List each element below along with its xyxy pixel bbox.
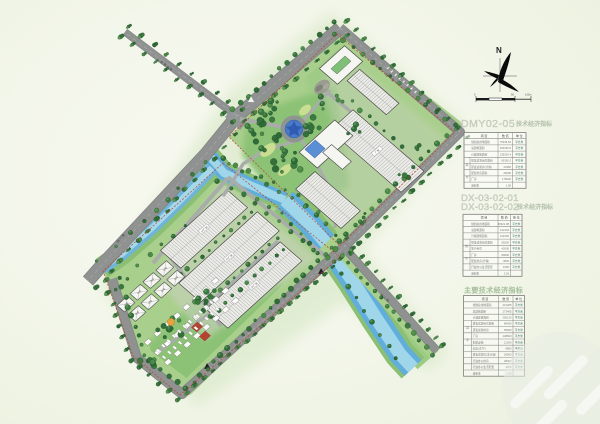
svg-text:平方米: 平方米 — [515, 165, 523, 169]
svg-text:平方米: 平方米 — [515, 309, 523, 313]
svg-text:配套设施: 配套设施 — [473, 340, 484, 344]
svg-text:容积率: 容积率 — [473, 371, 481, 375]
svg-text:平方米: 平方米 — [515, 140, 523, 144]
svg-text:平方米: 平方米 — [515, 322, 523, 326]
svg-text:规划总用地面积: 规划总用地面积 — [473, 303, 492, 307]
svg-text:项 目: 项 目 — [482, 297, 489, 301]
svg-text:研发试验用房: 研发试验用房 — [473, 328, 489, 332]
svg-text:主要技术经济指标: 主要技术经济指标 — [464, 285, 523, 294]
svg-text:平方米: 平方米 — [512, 222, 520, 226]
svg-text:平方米: 平方米 — [512, 247, 520, 251]
svg-text:平方米: 平方米 — [515, 340, 523, 344]
svg-text:75345.62: 75345.62 — [500, 140, 512, 144]
svg-text:平方米: 平方米 — [512, 234, 520, 238]
svg-text:其: 其 — [466, 326, 469, 330]
svg-text:N: N — [496, 46, 502, 55]
svg-text:研发试验用房面积: 研发试验用房面积 — [473, 322, 495, 326]
svg-text:89600: 89600 — [502, 253, 510, 257]
svg-text:总建筑面积: 总建筑面积 — [473, 309, 487, 313]
svg-text:行政办公用房: 行政办公用房 — [473, 359, 489, 363]
svg-text:配套用房(计容): 配套用房(计容) — [471, 259, 489, 263]
svg-text:86450: 86450 — [504, 322, 512, 326]
svg-text:生产用房: 生产用房 — [471, 247, 482, 251]
svg-text:平方米: 平方米 — [515, 146, 523, 150]
svg-text:中: 中 — [466, 338, 469, 342]
svg-text:数 值: 数 值 — [502, 296, 509, 301]
svg-text:数 值: 数 值 — [501, 215, 508, 220]
svg-text:65350.2: 65350.2 — [501, 159, 511, 163]
svg-text:132132: 132132 — [500, 228, 509, 232]
svg-text:单 位: 单 位 — [515, 296, 522, 301]
svg-text:其: 其 — [466, 162, 469, 166]
svg-text:45621.08: 45621.08 — [498, 222, 510, 226]
svg-text:12000: 12000 — [504, 340, 512, 344]
svg-text:273465: 273465 — [503, 309, 512, 313]
svg-text:65000: 65000 — [504, 328, 512, 332]
svg-text:研发试验房(计容): 研发试验房(计容) — [471, 165, 492, 169]
svg-text:100m: 100m — [525, 93, 532, 97]
svg-text:规划总用地面积: 规划总用地面积 — [471, 140, 490, 144]
svg-text:技术经济指标: 技术经济指标 — [517, 203, 553, 211]
svg-text:平方米: 平方米 — [515, 303, 523, 307]
svg-text:厂房: 厂房 — [473, 334, 479, 338]
svg-text:平方米: 平方米 — [515, 177, 523, 181]
svg-text:项 目: 项 目 — [481, 216, 488, 220]
svg-text:单 位: 单 位 — [513, 215, 520, 220]
svg-text:1.56: 1.56 — [506, 183, 512, 187]
svg-text:26500: 26500 — [504, 353, 512, 357]
svg-text:176620: 176620 — [502, 177, 511, 181]
svg-text:研发试验用房面积: 研发试验用房面积 — [471, 240, 493, 244]
svg-text:152345.6: 152345.6 — [500, 146, 512, 150]
svg-text:2.26: 2.26 — [504, 271, 510, 275]
svg-text:配套用房面积: 配套用房面积 — [471, 171, 487, 175]
svg-text:行政办公生活配套: 行政办公生活配套 — [473, 365, 495, 369]
svg-text:计容建筑面积: 计容建筑面积 — [471, 152, 487, 156]
svg-text:总建筑面积: 总建筑面积 — [471, 146, 485, 150]
svg-text:计容建筑面积: 计容建筑面积 — [471, 234, 487, 238]
svg-text:总建筑面积: 总建筑面积 — [471, 228, 485, 232]
svg-text:平方米: 平方米 — [515, 159, 523, 163]
svg-text:DMY02-05: DMY02-05 — [461, 118, 515, 130]
svg-text:容积率: 容积率 — [471, 271, 479, 275]
svg-text:平方米: 平方米 — [512, 253, 520, 257]
svg-text:单 位: 单 位 — [516, 133, 523, 138]
svg-text:中: 中 — [466, 175, 469, 179]
svg-text:1065: 1065 — [503, 265, 509, 269]
svg-text:121000: 121000 — [500, 234, 509, 238]
svg-text:其: 其 — [465, 244, 468, 248]
svg-text:24350: 24350 — [504, 165, 512, 169]
svg-text:135200.4: 135200.4 — [500, 152, 512, 156]
svg-text:容积率: 容积率 — [471, 183, 479, 187]
svg-text:平方米: 平方米 — [512, 259, 520, 263]
svg-text:4800: 4800 — [503, 259, 509, 263]
svg-text:28400: 28400 — [504, 171, 512, 175]
svg-text:平方米: 平方米 — [515, 171, 523, 175]
svg-text:平方米: 平方米 — [512, 228, 520, 232]
svg-text:148600: 148600 — [503, 334, 512, 338]
svg-text:宿舍(含7F): 宿舍(含7F) — [473, 347, 486, 351]
svg-text:58200: 58200 — [502, 240, 510, 244]
svg-text:256120: 256120 — [503, 316, 512, 320]
svg-text:研发试验房(非计容): 研发试验房(非计容) — [473, 353, 496, 357]
svg-text:平方米: 平方米 — [512, 240, 520, 244]
svg-text:DX-03-02-02: DX-03-02-02 — [461, 202, 519, 213]
svg-text:规划总用地面积: 规划总用地面积 — [471, 222, 490, 226]
svg-text:9800: 9800 — [506, 347, 512, 351]
svg-text:平方米: 平方米 — [515, 316, 523, 320]
svg-text:平方米: 平方米 — [515, 152, 523, 156]
svg-text:技术经济指标: 技术经济指标 — [516, 120, 552, 128]
svg-text:项 目: 项 目 — [481, 134, 488, 138]
svg-text:平方米: 平方米 — [515, 328, 523, 332]
svg-text:计容建筑面积: 计容建筑面积 — [473, 316, 489, 320]
svg-text:数 值: 数 值 — [502, 133, 509, 138]
svg-text:中: 中 — [465, 257, 468, 261]
svg-text:研发试验用房面积: 研发试验用房面积 — [471, 159, 493, 163]
svg-text:213465: 213465 — [503, 303, 512, 307]
svg-text:厂房: 厂房 — [471, 177, 477, 181]
svg-text:平方米: 平方米 — [512, 265, 520, 269]
svg-text:厂房: 厂房 — [471, 253, 477, 257]
svg-text:行政办公生活配套: 行政办公生活配套 — [471, 265, 493, 269]
svg-text:平方米: 平方米 — [515, 334, 523, 338]
svg-text:42000: 42000 — [502, 247, 510, 251]
